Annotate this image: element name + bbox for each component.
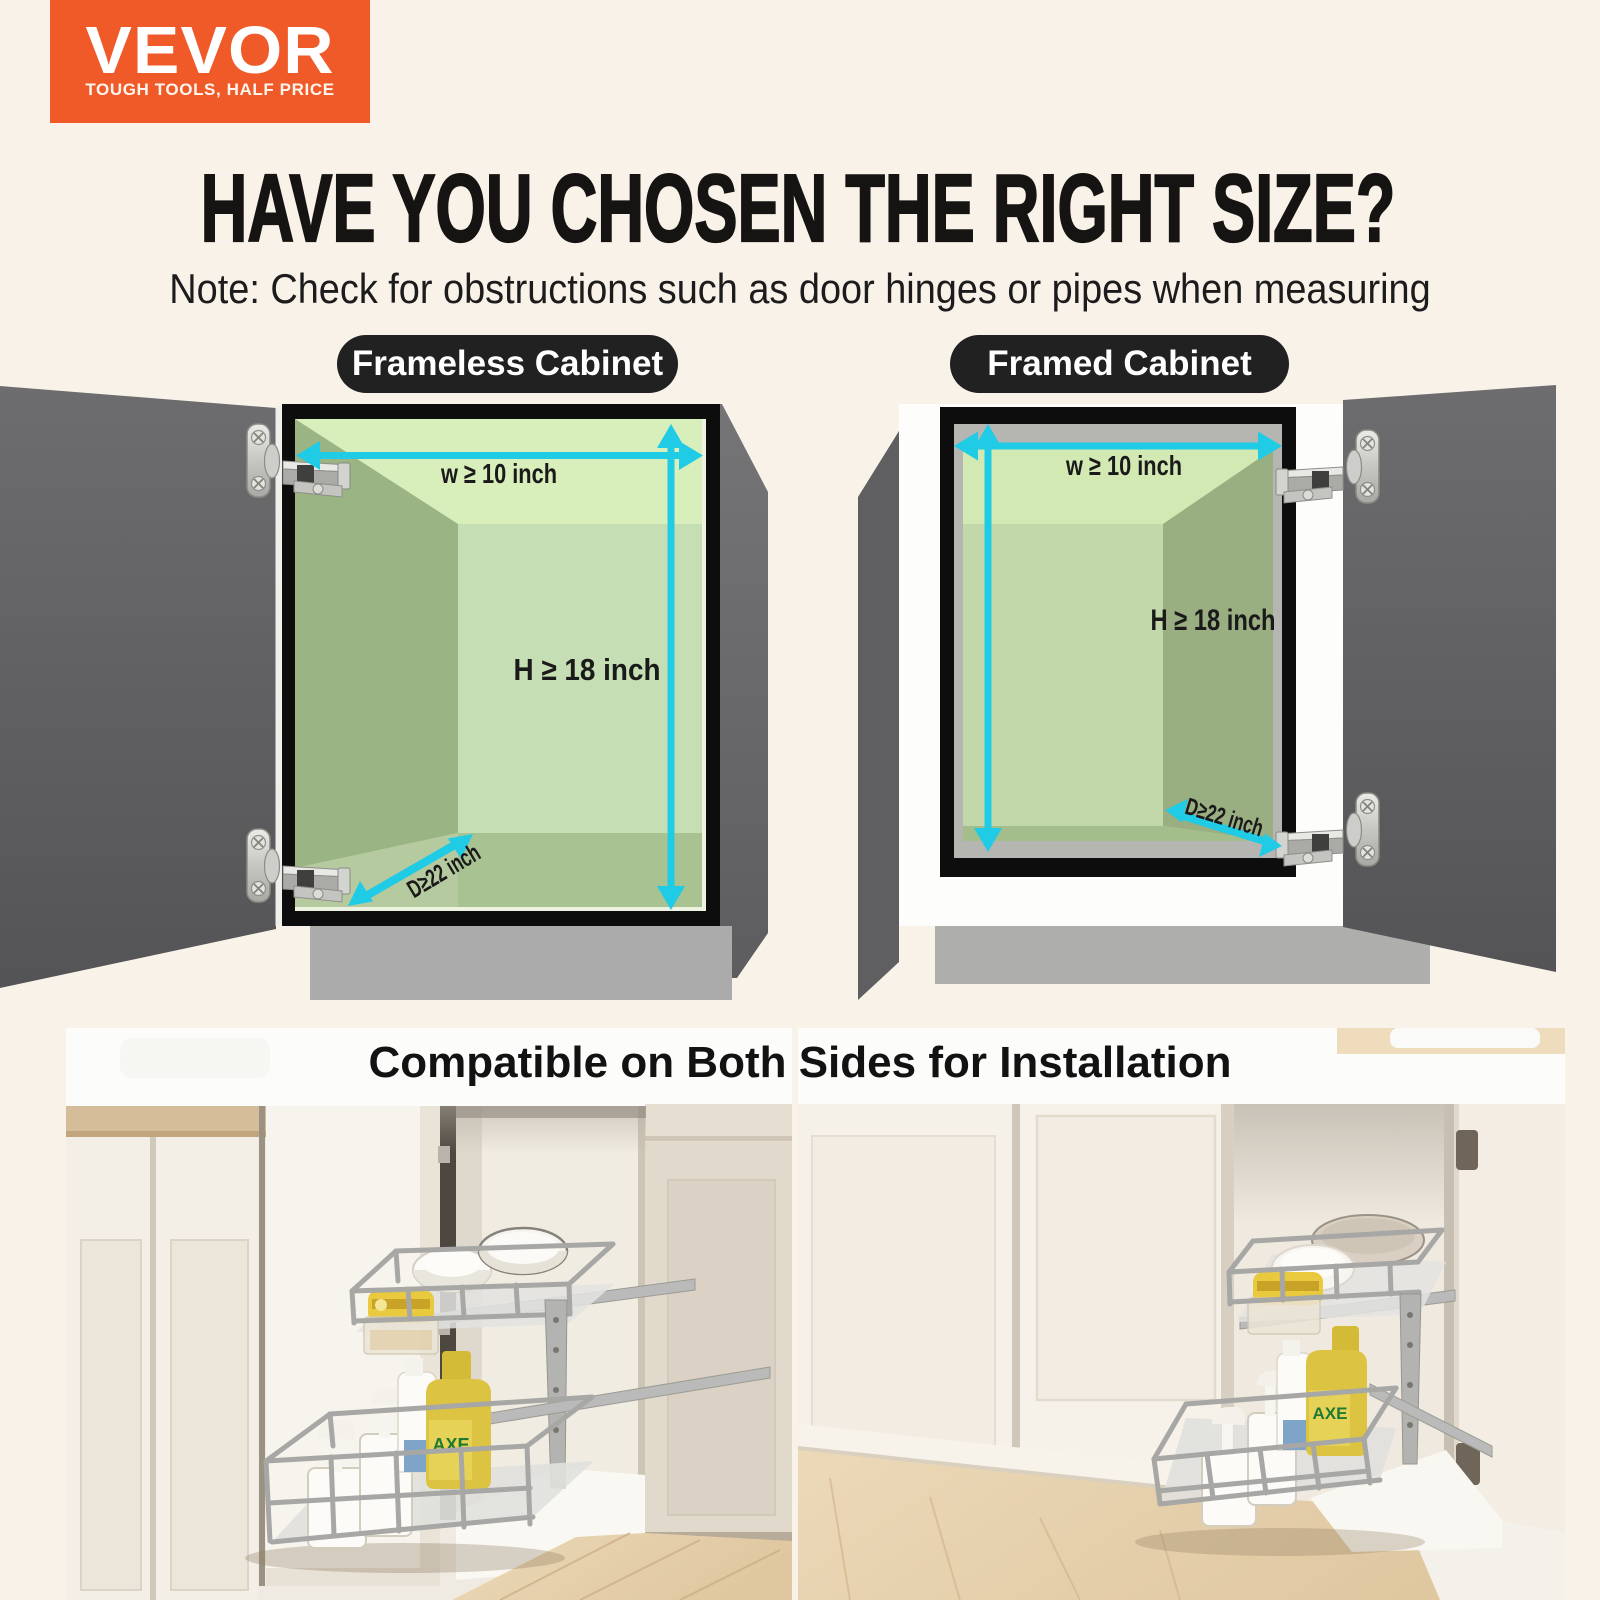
svg-text:H ≥ 18 inch: H ≥ 18 inch: [1151, 604, 1276, 637]
svg-text:H ≥ 18 inch: H ≥ 18 inch: [514, 652, 661, 687]
svg-text:AXE: AXE: [1313, 1404, 1348, 1423]
svg-text:w ≥ 10 inch: w ≥ 10 inch: [440, 458, 557, 489]
svg-text:w ≥ 10 inch: w ≥ 10 inch: [1065, 450, 1182, 481]
